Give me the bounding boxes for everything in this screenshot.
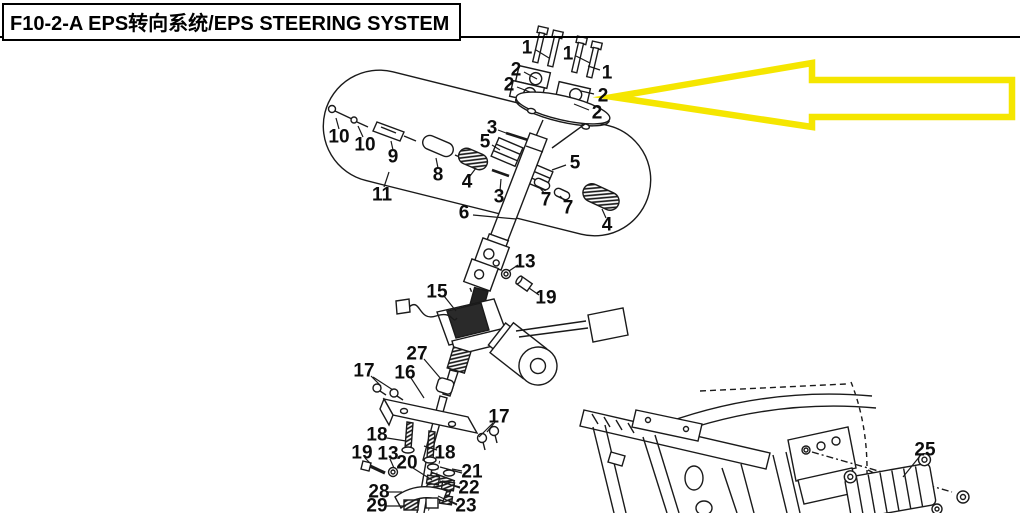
tie-rod-pin [329, 106, 369, 128]
part-callout-5: 5 [480, 132, 491, 153]
callout-leader [498, 130, 506, 133]
wire-connector [396, 299, 410, 314]
part-callout-10: 10 [328, 127, 349, 148]
roll-pin [492, 170, 509, 176]
diagram-canvas: 1112222335544677891010111319152716171718… [0, 0, 1020, 513]
part-callout-7: 7 [541, 190, 552, 211]
part-callout-19: 19 [351, 443, 372, 464]
part-callout-1: 1 [522, 38, 533, 59]
parts-diagram-page: F10-2-A EPS转向系统/EPS STEERING SYSTEM [0, 0, 1020, 513]
part-callout-3: 3 [494, 187, 505, 208]
part-callout-4: 4 [462, 172, 473, 193]
part-callout-23: 23 [455, 496, 476, 513]
part-callout-18: 18 [434, 443, 455, 464]
highlight-arrow-icon [613, 63, 1012, 127]
part-callout-13: 13 [514, 252, 535, 273]
part-callout-29: 29 [366, 496, 387, 513]
part-callout-25: 25 [914, 440, 936, 461]
part-callout-1: 1 [602, 63, 613, 84]
roll-pin [506, 133, 528, 140]
part-callout-6: 6 [459, 203, 470, 224]
part-callout-10: 10 [354, 135, 375, 156]
part-callout-11: 11 [372, 185, 393, 206]
flat-washer [428, 464, 439, 470]
callout-leader [552, 165, 566, 170]
ecu-bolt [957, 491, 969, 503]
page-title: F10-2-A EPS转向系统/EPS STEERING SYSTEM [2, 3, 461, 41]
part-callout-4: 4 [602, 215, 613, 236]
part-callout-16: 16 [394, 363, 415, 384]
part-callout-17: 17 [353, 361, 374, 382]
callout-leader [387, 438, 406, 441]
sleeve-cylinder [421, 133, 456, 158]
part-callout-17: 17 [488, 407, 509, 428]
knurled-bushing [580, 181, 622, 213]
part-callout-20: 20 [396, 453, 417, 474]
part-callout-19: 19 [535, 288, 556, 309]
output-spline [447, 347, 471, 373]
part-callout-5: 5 [570, 153, 581, 174]
part-callout-27: 27 [406, 344, 427, 365]
ecu-box [843, 453, 969, 513]
part-callout-1: 1 [563, 44, 574, 65]
part-callout-15: 15 [426, 282, 448, 303]
part-callout-13: 13 [377, 444, 398, 465]
part-callout-8: 8 [433, 165, 444, 186]
part-callout-2: 2 [592, 103, 603, 124]
part-callout-7: 7 [563, 198, 574, 219]
link-bracket [373, 122, 416, 141]
part-callout-9: 9 [388, 147, 399, 168]
part-callout-2: 2 [504, 75, 515, 96]
shaft-end-connector [588, 308, 628, 342]
clamp-arm [395, 487, 447, 508]
